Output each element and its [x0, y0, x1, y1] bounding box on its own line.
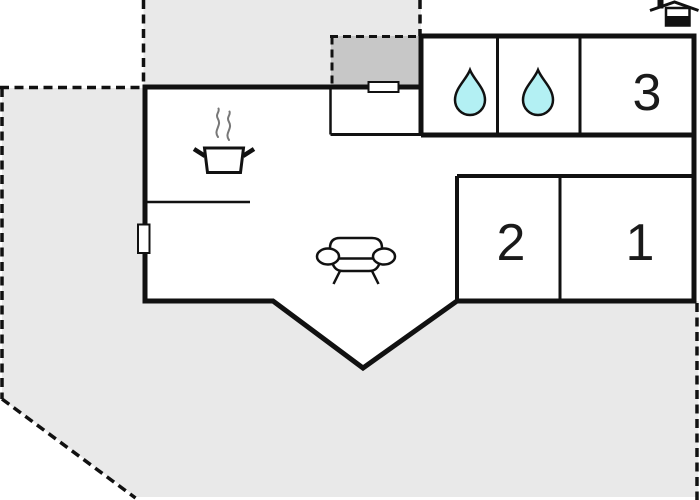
- house-icon: [650, 0, 699, 26]
- covered-terrace: [331, 36, 421, 87]
- window: [138, 225, 150, 254]
- room-2-label: 2: [497, 214, 526, 272]
- floor-plan-canvas: 1 2 3: [0, 0, 700, 500]
- sofa-arm-right: [373, 249, 395, 265]
- entrance-door: [369, 82, 399, 92]
- house-chimney: [658, 0, 664, 9]
- sofa-arm-left: [317, 249, 339, 265]
- house-body-dark-half: [667, 16, 689, 25]
- room-3-label: 3: [633, 64, 662, 122]
- room-1-label: 1: [626, 214, 655, 272]
- pot-body: [205, 148, 244, 173]
- floor-plan: 1 2 3: [0, 0, 700, 500]
